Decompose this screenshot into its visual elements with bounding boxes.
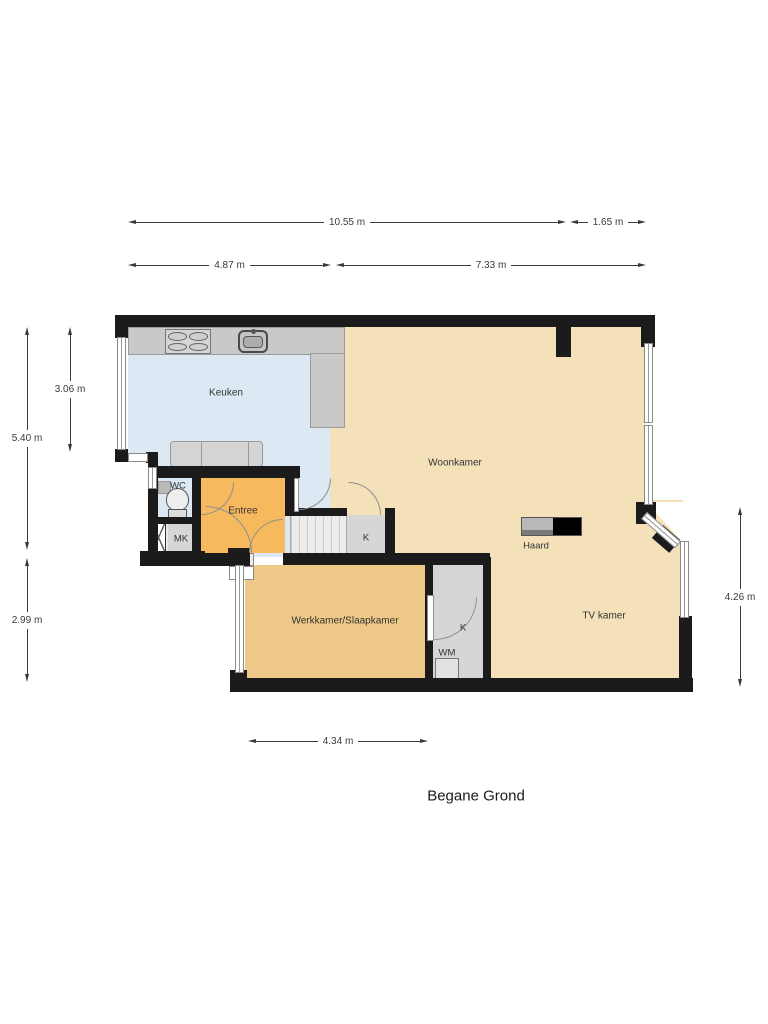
arrow-right-icon bbox=[638, 220, 646, 224]
label-entree: Entree bbox=[228, 506, 257, 517]
wall-bottom bbox=[230, 678, 693, 692]
arrow-left-icon bbox=[248, 739, 256, 743]
wall-left-block bbox=[115, 449, 128, 462]
fireplace-hearth bbox=[522, 518, 553, 530]
kitchen-counter bbox=[128, 327, 345, 355]
sink-basin bbox=[243, 336, 263, 348]
label-keuken: Keuken bbox=[209, 388, 243, 399]
island-divider bbox=[201, 442, 202, 466]
dim-left-lower: 2.99 m bbox=[5, 558, 49, 682]
stove-icon bbox=[165, 329, 211, 354]
dim-label: 7.33 m bbox=[471, 260, 512, 271]
kast-onder-door-leaf bbox=[427, 595, 434, 641]
label-werkkamer: Werkkamer/Slaapkamer bbox=[291, 616, 398, 627]
fireplace-icon bbox=[521, 517, 582, 536]
kitchen-island bbox=[170, 441, 263, 467]
window-wc bbox=[148, 467, 157, 489]
dim-upper-left: 4.87 m bbox=[128, 259, 331, 271]
label-tv-kamer: TV kamer bbox=[582, 611, 625, 622]
arrow-down-icon bbox=[25, 674, 29, 682]
stairs bbox=[290, 515, 347, 557]
arrow-up-icon bbox=[25, 327, 29, 335]
arrow-left-icon bbox=[128, 263, 136, 267]
tap-icon bbox=[251, 329, 256, 334]
sink-icon bbox=[238, 330, 268, 353]
fireplace-hearth-edge bbox=[522, 530, 553, 535]
label-haard: Haard bbox=[523, 541, 549, 552]
arrow-up-icon bbox=[68, 327, 72, 335]
wall-entree-bottom-a bbox=[198, 553, 229, 566]
window-werkkamer-left bbox=[235, 565, 244, 673]
label-woonkamer: Woonkamer bbox=[428, 458, 482, 469]
label-mk: MK bbox=[174, 534, 188, 545]
arrow-right-icon bbox=[323, 263, 331, 267]
arrow-left-icon bbox=[336, 263, 344, 267]
window-sill bbox=[128, 453, 148, 462]
arrow-up-icon bbox=[738, 507, 742, 515]
arrow-down-icon bbox=[25, 542, 29, 550]
arrow-right-icon bbox=[558, 220, 566, 224]
dim-left-kitchen: 3.06 m bbox=[48, 327, 92, 452]
dim-top-total: 10.55 m bbox=[128, 216, 566, 228]
dim-label: 5.40 m bbox=[12, 430, 43, 447]
label-wc: WC bbox=[170, 481, 186, 492]
dim-upper-right: 7.33 m bbox=[336, 259, 646, 271]
arrow-down-icon bbox=[68, 444, 72, 452]
dim-label: 1.65 m bbox=[588, 217, 629, 228]
dim-label: 2.99 m bbox=[12, 612, 43, 629]
dim-bottom: 4.34 m bbox=[248, 735, 428, 747]
dim-right-lower: 4.26 m bbox=[718, 507, 762, 687]
wall-kast-tv bbox=[483, 557, 491, 682]
page-title: Begane Grond bbox=[427, 788, 525, 805]
arrow-left-icon bbox=[128, 220, 136, 224]
dim-label: 3.06 m bbox=[55, 381, 86, 398]
arrow-right-icon bbox=[638, 263, 646, 267]
arrow-right-icon bbox=[420, 739, 428, 743]
dim-label: 4.26 m bbox=[725, 589, 756, 606]
window-tv-right bbox=[680, 541, 689, 618]
floorplan-page: 10.55 m 1.65 m 4.87 m 7.33 m 5.40 m 3.06… bbox=[0, 0, 768, 1024]
label-kast-onder: K bbox=[460, 623, 466, 634]
dim-label: 10.55 m bbox=[324, 217, 370, 228]
wall-right-lower bbox=[679, 616, 692, 682]
kitchen-counter-side bbox=[310, 353, 345, 428]
arrow-left-icon bbox=[570, 220, 578, 224]
label-kast-boven: K bbox=[363, 533, 369, 544]
window-kitchen-left bbox=[117, 337, 126, 450]
arrow-up-icon bbox=[25, 558, 29, 566]
dim-left-total: 5.40 m bbox=[5, 327, 49, 550]
wall-entree-top bbox=[150, 466, 300, 478]
dim-label: 4.87 m bbox=[209, 260, 250, 271]
wall-stub bbox=[556, 327, 571, 357]
dim-label: 4.34 m bbox=[318, 736, 359, 747]
island-divider bbox=[248, 442, 249, 466]
dim-top-bay: 1.65 m bbox=[570, 216, 646, 228]
wall-entree-left bbox=[192, 478, 201, 554]
arrow-down-icon bbox=[738, 679, 742, 687]
wall-wc-mk-divider bbox=[150, 517, 195, 524]
window-woonkamer-right-b bbox=[644, 425, 653, 505]
wall-top bbox=[115, 315, 655, 327]
fireplace-body bbox=[553, 518, 581, 535]
window-woonkamer-right-a bbox=[644, 343, 653, 423]
label-wm: WM bbox=[439, 648, 456, 659]
wall-kast-right bbox=[385, 508, 395, 558]
